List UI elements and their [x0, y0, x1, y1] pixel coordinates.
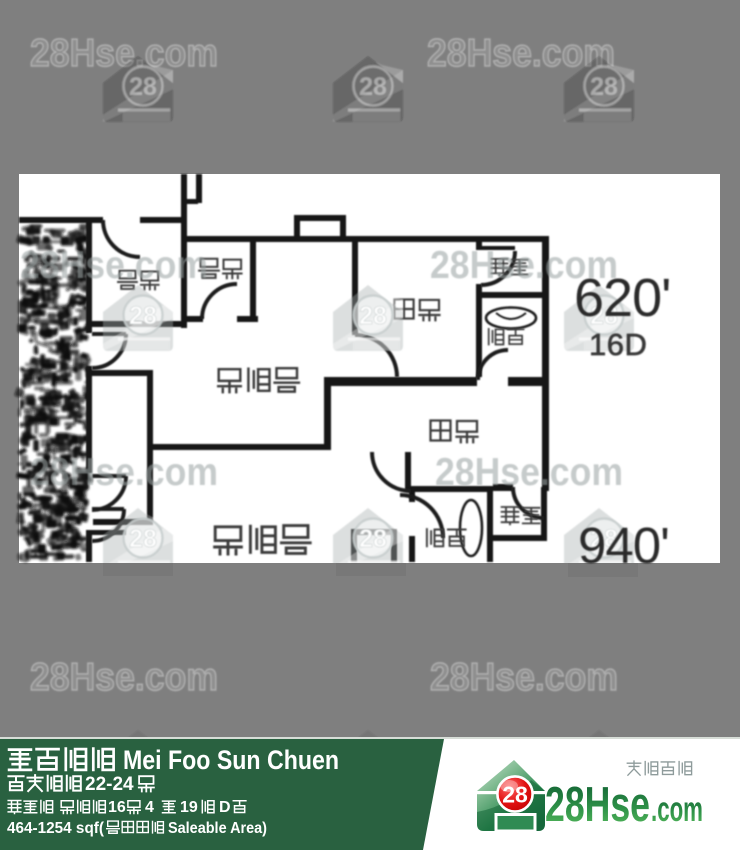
svg-text:16D: 16D	[589, 327, 647, 362]
svg-text:620': 620'	[574, 268, 670, 328]
svg-text:28: 28	[590, 73, 618, 101]
svg-text:4: 4	[145, 799, 154, 816]
svg-text:28Hse.com: 28Hse.com	[30, 656, 218, 699]
svg-text:28: 28	[359, 302, 387, 330]
svg-text:28: 28	[129, 73, 157, 101]
svg-text:28Hse.com: 28Hse.com	[435, 451, 623, 494]
svg-text:28Hse.com: 28Hse.com	[430, 656, 618, 699]
svg-text:28Hse.com: 28Hse.com	[30, 451, 218, 494]
svg-text:464-1254 sqf(: 464-1254 sqf(	[7, 820, 105, 837]
svg-text:.com: .com	[651, 790, 703, 829]
svg-text:D: D	[219, 799, 231, 816]
svg-text:22-24: 22-24	[85, 774, 134, 795]
svg-text:28: 28	[359, 73, 387, 101]
svg-text:28: 28	[129, 525, 157, 553]
svg-text:28Hse.com: 28Hse.com	[20, 244, 208, 287]
svg-text:28: 28	[502, 782, 528, 808]
svg-text:Mei Foo Sun Chuen: Mei Foo Sun Chuen	[123, 745, 339, 775]
svg-text:28Hse: 28Hse	[545, 778, 650, 832]
svg-text:16: 16	[108, 799, 126, 816]
svg-text:19: 19	[180, 799, 198, 816]
svg-text:28: 28	[359, 525, 387, 553]
svg-text:940': 940'	[578, 517, 669, 574]
svg-text:28: 28	[129, 302, 157, 330]
svg-text:Saleable Area): Saleable Area)	[168, 820, 267, 837]
